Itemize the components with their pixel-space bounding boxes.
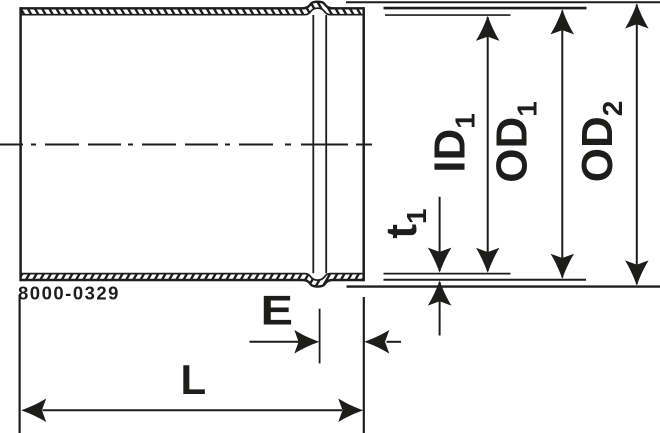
svg-text:8000-0329: 8000-0329 <box>18 282 120 303</box>
svg-text:L: L <box>181 356 207 403</box>
svg-text:E: E <box>261 287 293 334</box>
